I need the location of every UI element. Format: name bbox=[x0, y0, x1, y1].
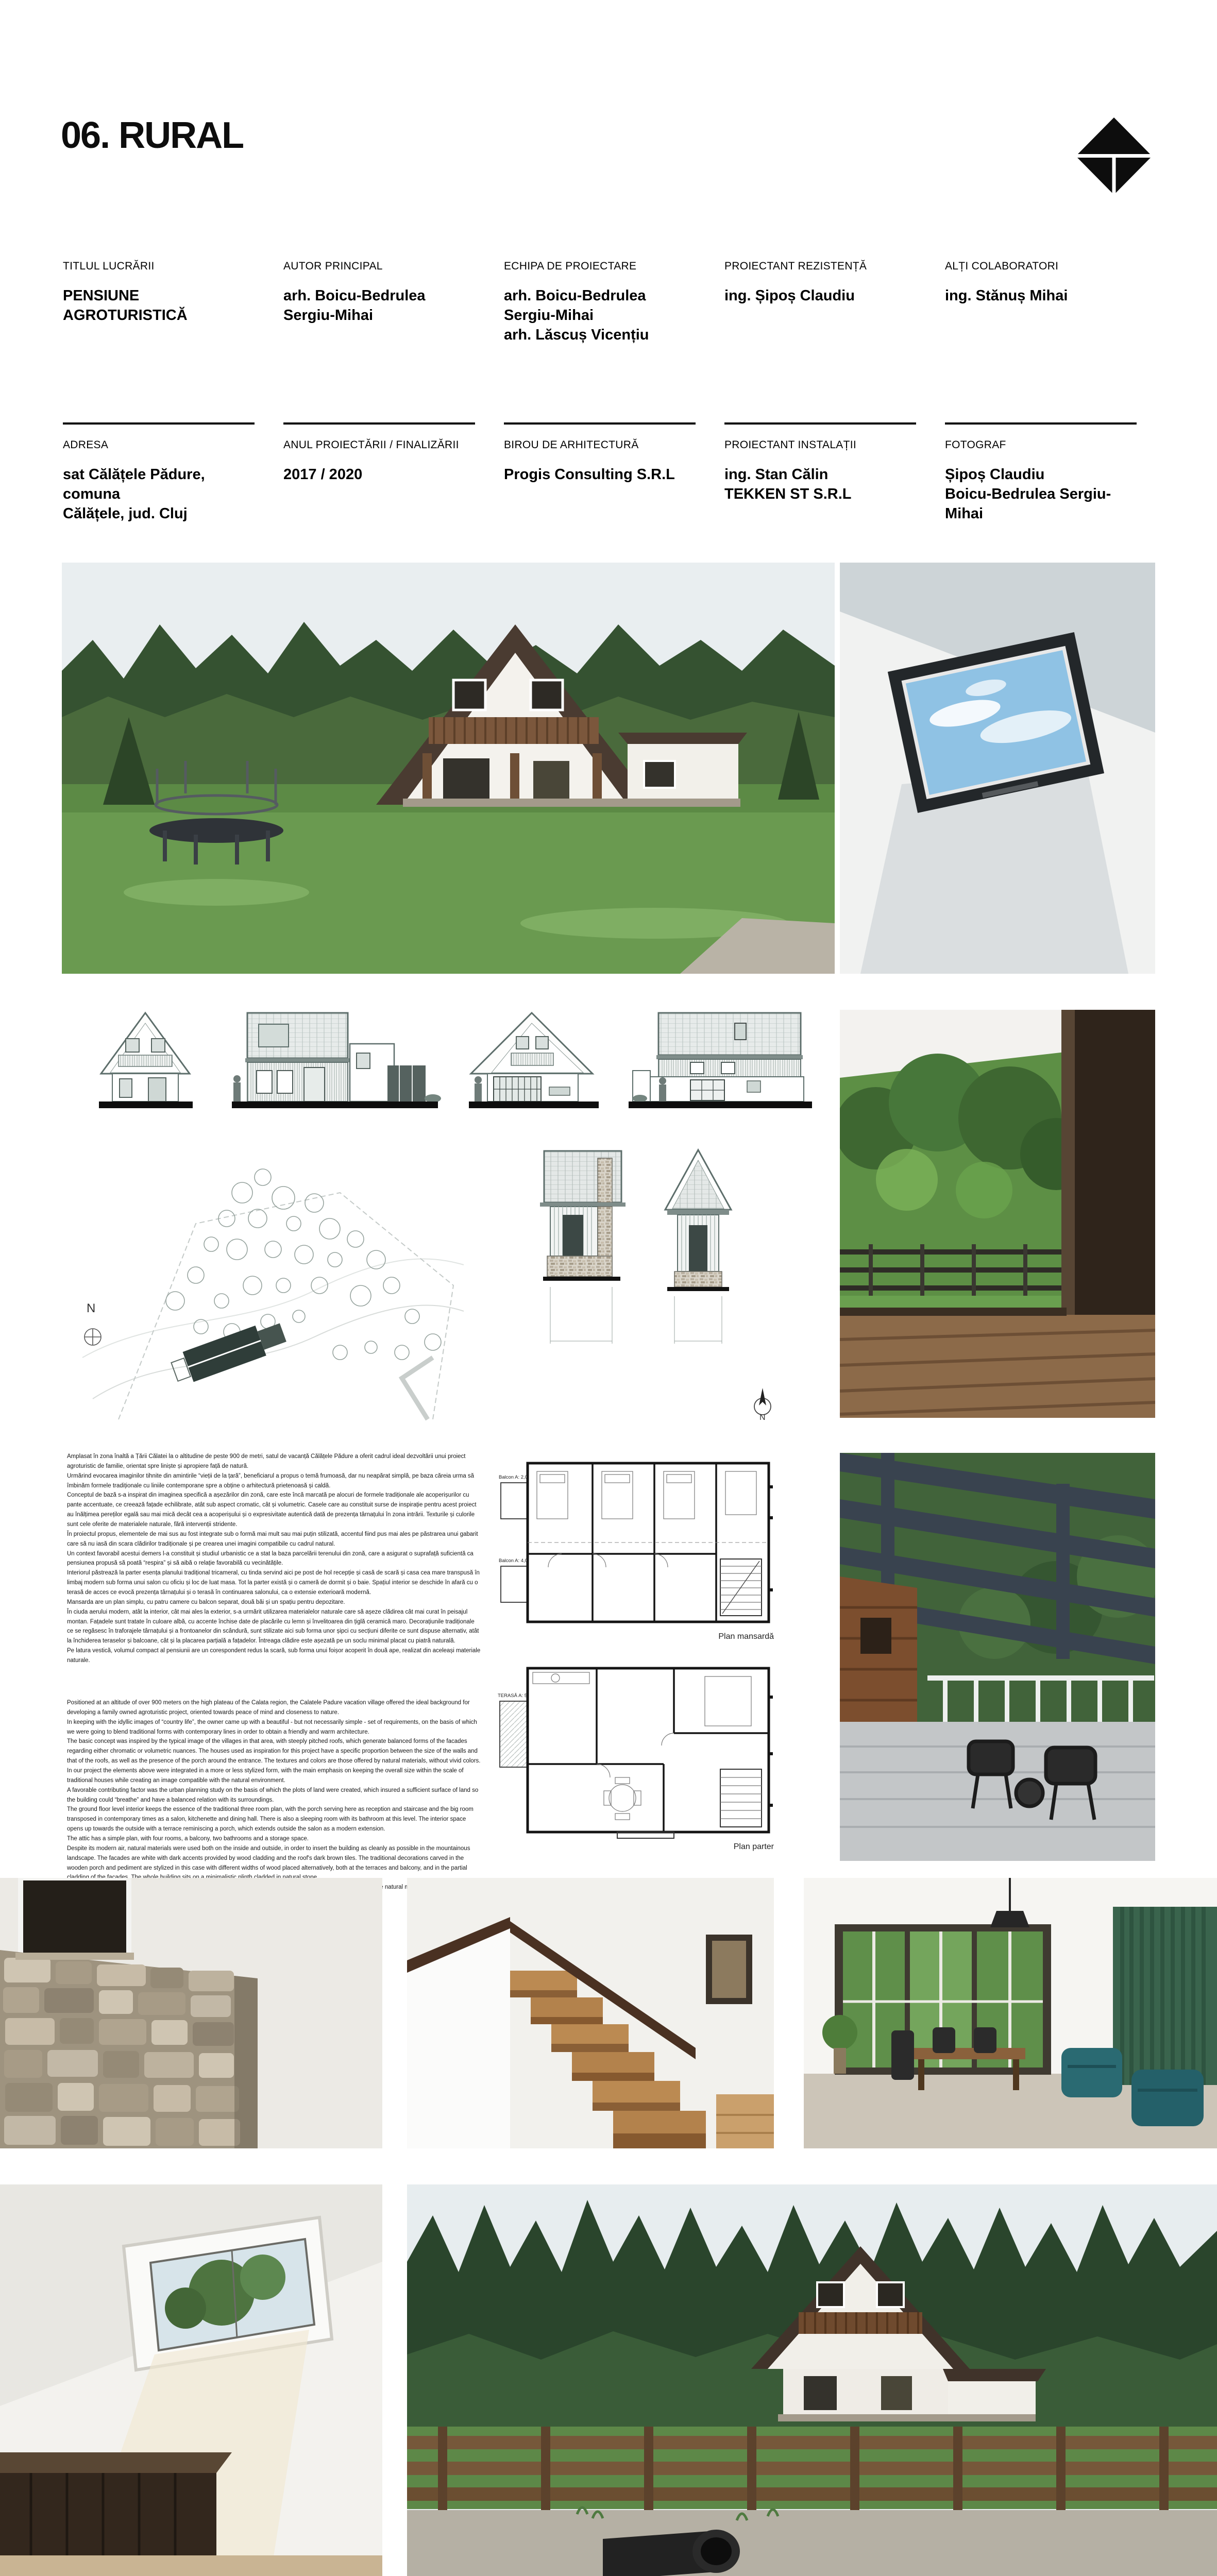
meta-value-line: Sergiu-Mihai bbox=[283, 306, 475, 325]
paragraph: Conceptul de bază s-a inspirat din imagi… bbox=[67, 1490, 482, 1529]
wooden-fence bbox=[407, 2427, 1217, 2512]
paragraph: Un context favorabil acestui demers l-a … bbox=[67, 1549, 482, 1569]
paragraph: Urmărind evocarea imaginilor tihnite din… bbox=[67, 1471, 482, 1491]
north-arrow: N bbox=[750, 1385, 775, 1421]
window-bench bbox=[0, 2452, 232, 2555]
floor-plan-ground: TERASĂ A: 5,63 m² bbox=[494, 1661, 776, 1839]
meta-value-line: Călățele, jud. Cluj bbox=[63, 504, 255, 523]
meta-label: ADRESA bbox=[63, 439, 255, 451]
paragraph: Positioned at an altitude of over 900 me… bbox=[67, 1698, 482, 1718]
paragraph: În ciuda aerului modern, atât la interio… bbox=[67, 1607, 482, 1646]
photo-attic-skylight bbox=[0, 2184, 382, 2576]
meta-label: AUTOR PRINCIPAL bbox=[283, 260, 475, 273]
meta-value-line: ing. Stănuș Mihai bbox=[945, 286, 1137, 306]
meta-label: BIROU DE ARHITECTURĂ bbox=[504, 439, 696, 451]
photo-house-exterior bbox=[62, 563, 835, 974]
photo-stone-detail bbox=[0, 1878, 382, 2148]
paragraph: In our project the elements above were i… bbox=[67, 1766, 482, 1786]
photo-terrace-door bbox=[840, 1010, 1155, 1418]
photo-dining-interior bbox=[804, 1878, 1217, 2148]
meta-colaboratori: ALȚI COLABORATORI ing. Stănuș Mihai bbox=[945, 260, 1137, 306]
meta-value-line: Progis Consulting S.R.L bbox=[504, 465, 696, 484]
competition-board: 06. RURAL TITLUL LUCRĂRII PENSIUNEAGROTU… bbox=[0, 0, 1217, 2576]
meta-value-line: arh. Boicu-Bedrulea bbox=[283, 286, 475, 306]
photo-house-fence bbox=[407, 2184, 1217, 2576]
tree-symbols bbox=[166, 1169, 441, 1360]
meta-rezistenta: PROIECTANT REZISTENȚĂ ing. Șipoș Claudiu bbox=[724, 260, 916, 306]
meta-label: PROIECTANT REZISTENȚĂ bbox=[724, 260, 916, 273]
meta-fotograf: FOTOGRAF Șipoș ClaudiuBoicu-Bedrulea Ser… bbox=[945, 422, 1137, 523]
paragraph: Interiorul păstrează la parter esența pl… bbox=[67, 1568, 482, 1598]
meta-label: FOTOGRAF bbox=[945, 439, 1137, 451]
paragraph: The basic concept was inspired by the ty… bbox=[67, 1737, 482, 1766]
site-plan-drawing: N bbox=[72, 1131, 469, 1440]
description-english: Positioned at an altitude of over 900 me… bbox=[67, 1698, 482, 1892]
meta-echipa: ECHIPA DE PROIECTARE arh. Boicu-Bedrulea… bbox=[504, 260, 696, 345]
paragraph: The attic has a simple plan, with four r… bbox=[67, 1834, 482, 1844]
meta-value-line: 2017 / 2020 bbox=[283, 465, 475, 484]
north-label: N bbox=[87, 1301, 95, 1315]
meta-label: TITLUL LUCRĂRII bbox=[63, 260, 255, 273]
floor-plan-attic: Balcon A: 2,00 m² Balcon A: 4,00 m² bbox=[494, 1456, 776, 1629]
paragraph: În proiectul propus, elementele de mai s… bbox=[67, 1530, 482, 1549]
gazebo-elevation-side bbox=[662, 1148, 734, 1354]
photo-roof-window bbox=[840, 563, 1155, 974]
svg-text:N: N bbox=[759, 1413, 766, 1421]
elevation-side-b bbox=[629, 1013, 812, 1108]
meta-instalatii: PROIECTANT INSTALAȚII ing. Stan CălinTEK… bbox=[724, 422, 916, 504]
paragraph: The ground floor level interior keeps th… bbox=[67, 1805, 482, 1834]
paragraph: In keeping with the idyllic images of “c… bbox=[67, 1718, 482, 1737]
meta-adresa: ADRESA sat Călățele Pădure, comunaCălățe… bbox=[63, 422, 255, 523]
meta-anul: ANUL PROIECTĂRII / FINALIZĂRII 2017 / 20… bbox=[283, 422, 475, 484]
elevation-rear bbox=[469, 1013, 599, 1108]
meta-label: PROIECTANT INSTALAȚII bbox=[724, 439, 916, 451]
meta-value-line: PENSIUNE bbox=[63, 286, 255, 306]
paragraph: Amplasat în zona înaltă a Țării Călatei … bbox=[67, 1452, 482, 1471]
elevation-drawings bbox=[72, 1010, 824, 1113]
meta-value-line: AGROTURISTICĂ bbox=[63, 306, 255, 325]
plan-caption-attic: Plan mansardă bbox=[650, 1632, 774, 1641]
batra-diamond-logo bbox=[1076, 117, 1152, 195]
meta-value-line: Sergiu-Mihai bbox=[504, 306, 696, 325]
photo-pergola-terrace bbox=[840, 1453, 1155, 1861]
meta-value-line: sat Călățele Pădure, comuna bbox=[63, 465, 255, 504]
paragraph: Mansarda are un plan simplu, cu patru ca… bbox=[67, 1598, 482, 1607]
meta-value-line: arh. Boicu-Bedrulea bbox=[504, 286, 696, 306]
paragraph: Despite its modern air, natural material… bbox=[67, 1844, 482, 1883]
meta-value-line: ing. Șipoș Claudiu bbox=[724, 286, 916, 306]
meta-birou: BIROU DE ARHITECTURĂ Progis Consulting S… bbox=[504, 422, 696, 484]
description-romanian: Amplasat în zona înaltă a Țării Călatei … bbox=[67, 1452, 482, 1666]
elevation-side-a bbox=[232, 1013, 441, 1108]
gazebo-elevation-front bbox=[540, 1148, 628, 1354]
meta-value-line: Boicu-Bedrulea Sergiu-Mihai bbox=[945, 484, 1137, 523]
meta-label: ALȚI COLABORATORI bbox=[945, 260, 1137, 273]
meta-titlul-lucrarii: TITLUL LUCRĂRII PENSIUNEAGROTURISTICĂ bbox=[63, 260, 255, 325]
elevation-front bbox=[99, 1013, 193, 1108]
meta-label: ECHIPA DE PROIECTARE bbox=[504, 260, 696, 273]
plan-caption-ground: Plan parter bbox=[650, 1842, 774, 1852]
meta-autor-principal: AUTOR PRINCIPAL arh. Boicu-BedruleaSergi… bbox=[283, 260, 475, 325]
meta-value-line: Șipoș Claudiu bbox=[945, 465, 1137, 484]
meta-value-line: ing. Stan Călin bbox=[724, 465, 916, 484]
photo-staircase bbox=[407, 1878, 774, 2148]
page-title: 06. RURAL bbox=[61, 114, 243, 157]
paragraph: A favorable contributing factor was the … bbox=[67, 1786, 482, 1805]
meta-label: ANUL PROIECTĂRII / FINALIZĂRII bbox=[283, 439, 475, 451]
meta-value-line: arh. Lăscuș Vicențiu bbox=[504, 325, 696, 345]
paragraph: Pe latura vestică, volumul compact al pe… bbox=[67, 1646, 482, 1666]
meta-value-line: TEKKEN ST S.R.L bbox=[724, 484, 916, 504]
